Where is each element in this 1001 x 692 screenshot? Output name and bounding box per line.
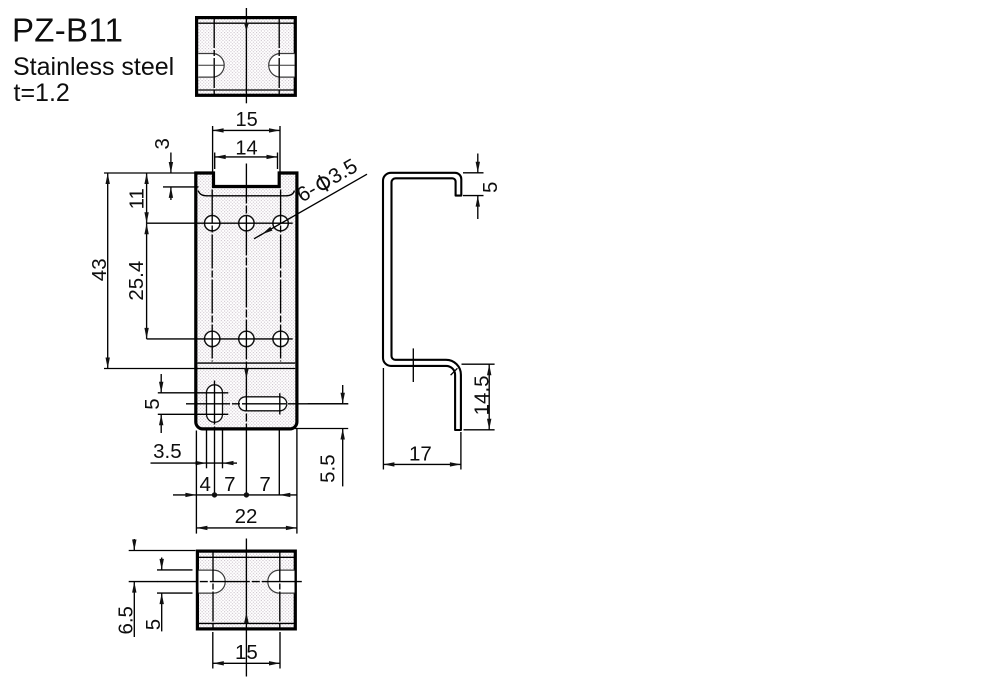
svg-text:3: 3 — [151, 138, 174, 149]
svg-text:22: 22 — [235, 505, 258, 528]
svg-text:15: 15 — [235, 109, 257, 131]
svg-text:5: 5 — [142, 619, 165, 630]
svg-text:PZ-B11: PZ-B11 — [12, 12, 123, 49]
svg-text:25.4: 25.4 — [125, 261, 148, 301]
svg-text:14: 14 — [235, 137, 257, 159]
svg-text:6.5: 6.5 — [114, 606, 137, 635]
svg-text:7: 7 — [259, 473, 270, 496]
svg-text:4: 4 — [199, 473, 210, 496]
svg-text:11: 11 — [126, 188, 149, 209]
svg-text:3.5: 3.5 — [153, 440, 182, 463]
svg-text:5: 5 — [479, 182, 502, 193]
svg-text:14.5: 14.5 — [471, 375, 494, 415]
svg-text:43: 43 — [88, 258, 111, 281]
svg-text:17: 17 — [409, 442, 432, 465]
svg-text:t=1.2: t=1.2 — [14, 79, 70, 107]
svg-text:5.5: 5.5 — [317, 454, 340, 483]
svg-text:15: 15 — [235, 641, 258, 664]
svg-text:5: 5 — [141, 398, 164, 409]
svg-text:Stainless steel: Stainless steel — [13, 53, 174, 81]
svg-text:7: 7 — [224, 473, 235, 496]
